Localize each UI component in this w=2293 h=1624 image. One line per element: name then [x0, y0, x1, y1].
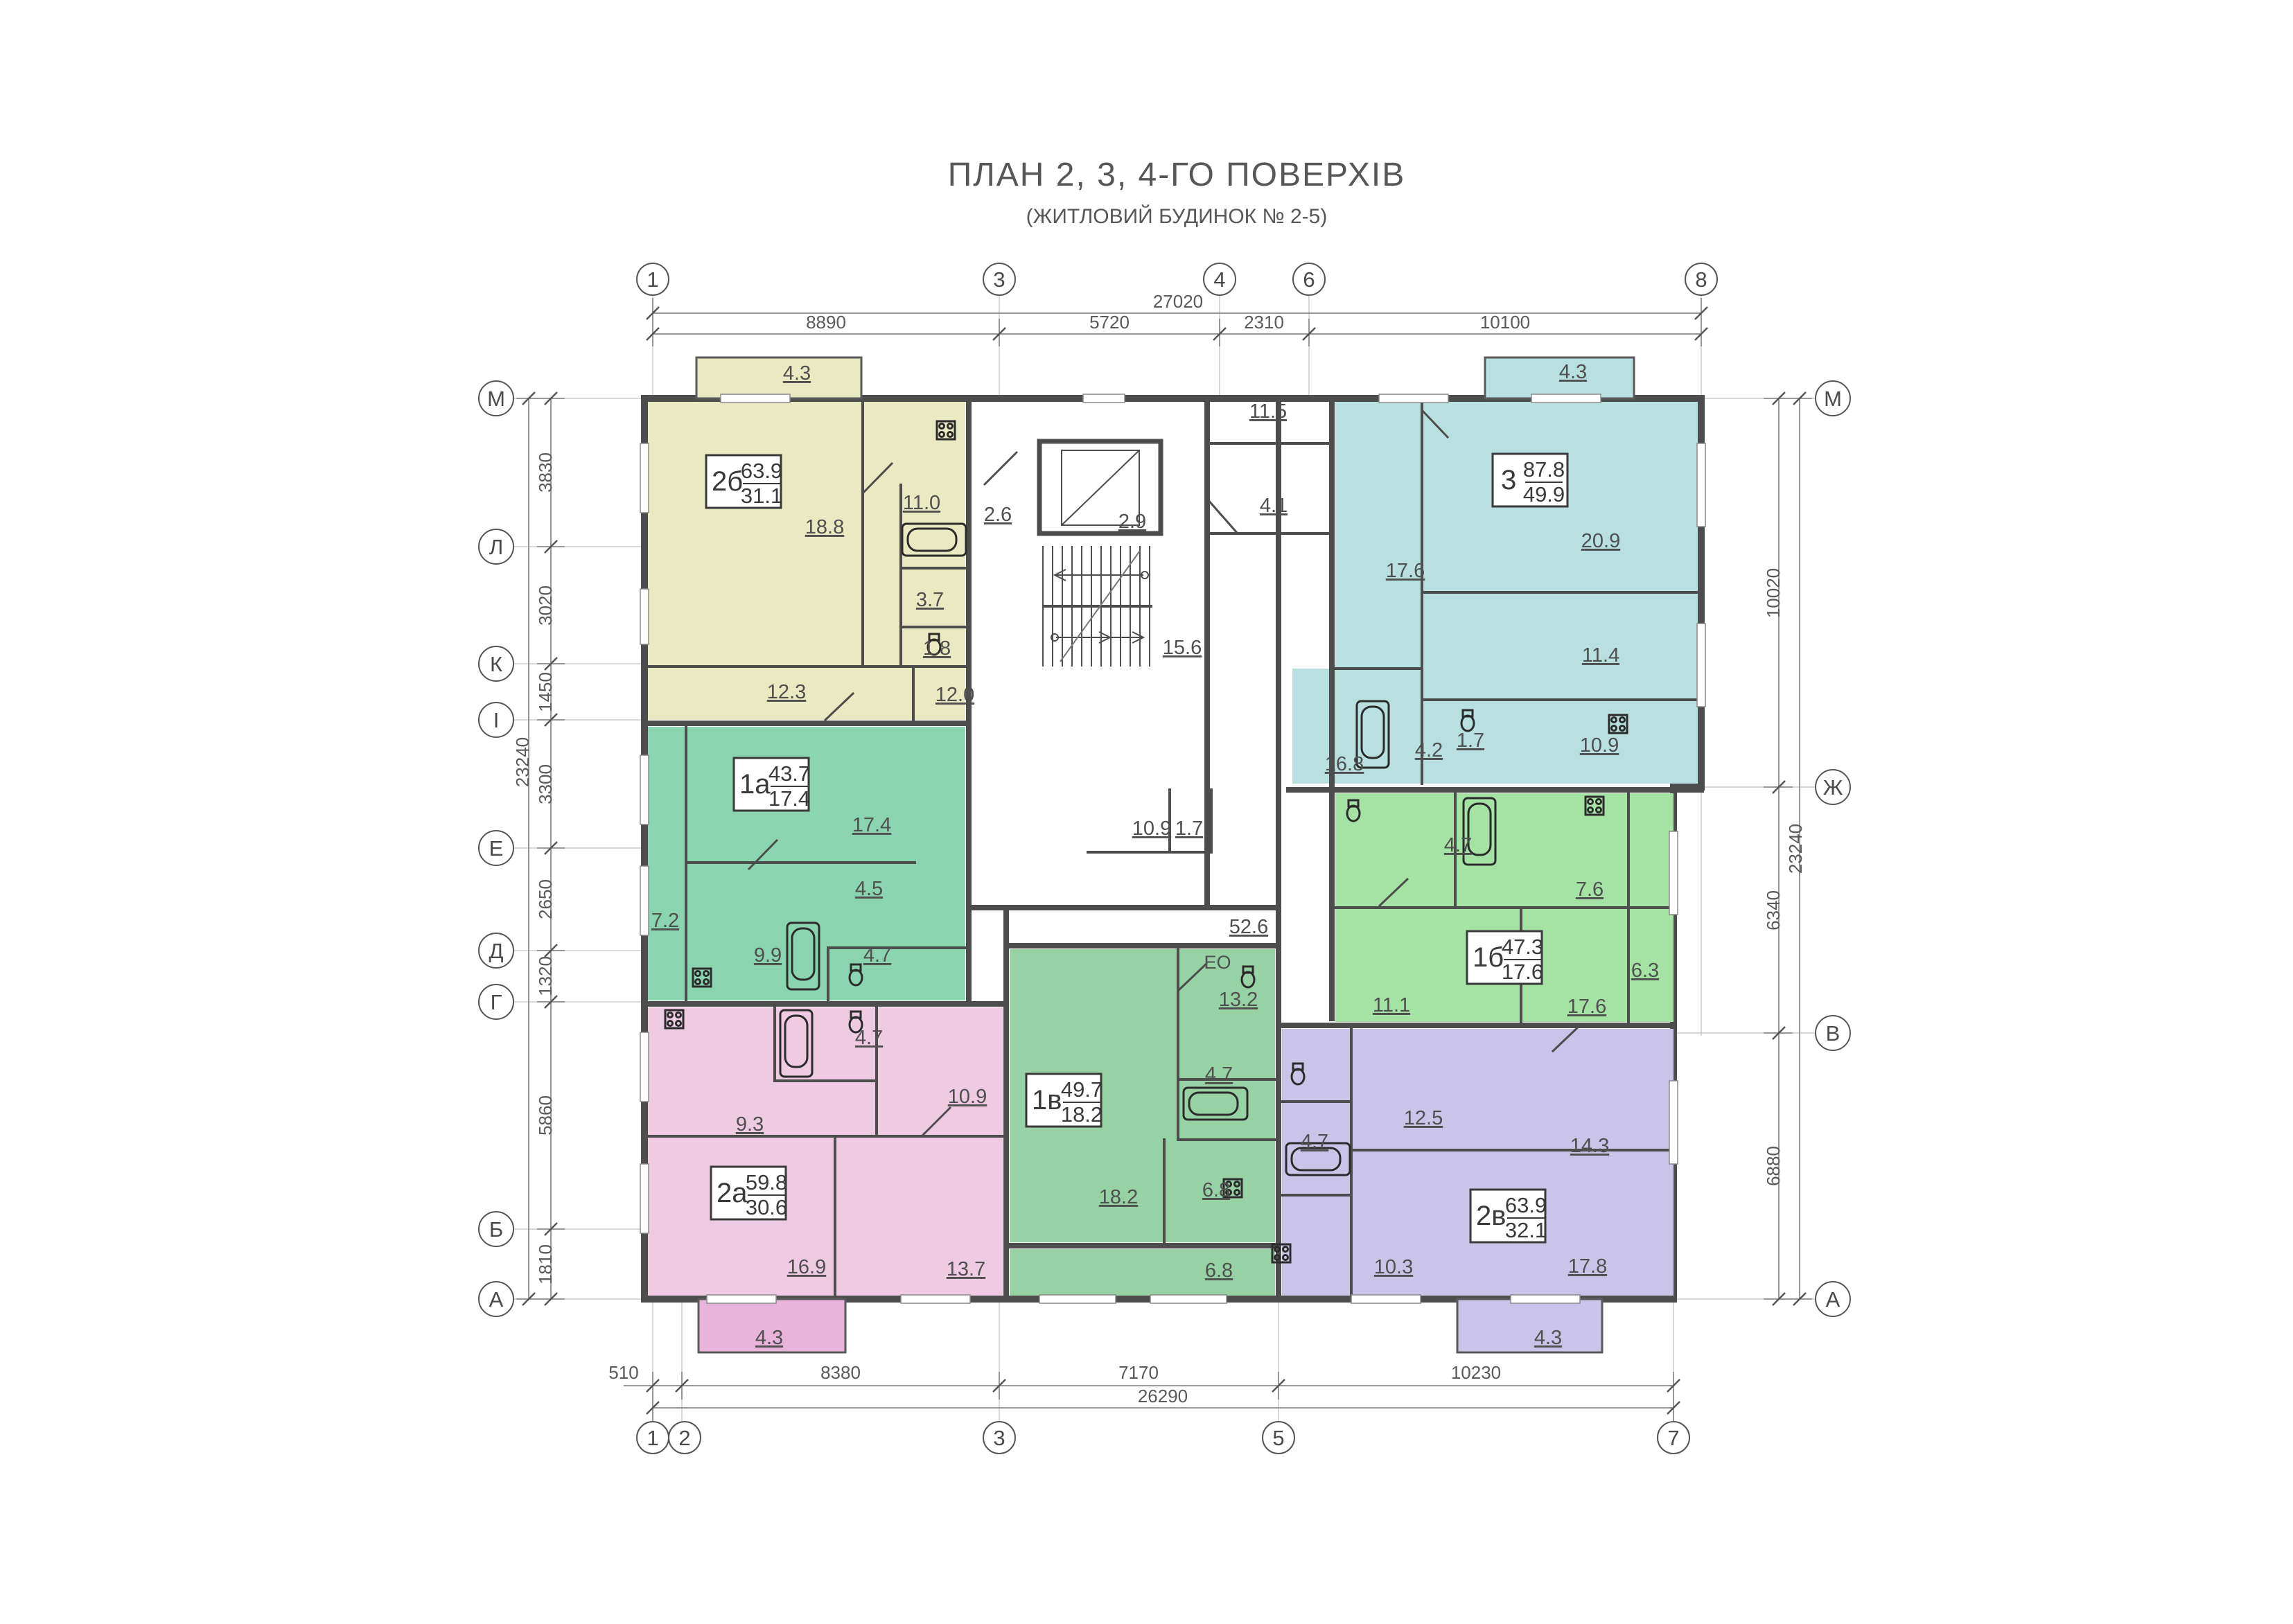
floor-plan-drawing: ПЛАН 2, 3, 4-ГО ПОВЕРХІВ (ЖИТЛОВИЙ БУДИН…	[0, 0, 2293, 1621]
room-area: 10.3	[1374, 1256, 1413, 1278]
room-area: 4.5	[855, 878, 883, 900]
dim-label: 2310	[1244, 312, 1284, 333]
room-area: 20.9	[1581, 530, 1620, 552]
axis-label: Ж	[1823, 775, 1843, 800]
room-area: 11.0	[903, 492, 940, 514]
dim-label: 8380	[820, 1362, 861, 1383]
dim-label: 27020	[1153, 291, 1203, 312]
room-area: 14.3	[1570, 1135, 1609, 1157]
dim-label: 10020	[1763, 568, 1784, 618]
apartment-id: 2а	[717, 1178, 748, 1208]
room-area: 1.8	[923, 637, 951, 660]
room-area: 6.3	[1631, 960, 1659, 982]
axis-label: 8	[1695, 267, 1707, 292]
balcony-area: 4.3	[783, 362, 811, 385]
room-area: 10.9	[1580, 734, 1619, 757]
axis-label: 4	[1213, 267, 1225, 292]
dim-ticks	[522, 392, 557, 1305]
room-area: 17.8	[1568, 1255, 1607, 1278]
page-title: ПЛАН 2, 3, 4-ГО ПОВЕРХІВ	[948, 157, 1406, 193]
apartment-label-1b: 1б 47.3 17.6	[1467, 931, 1543, 984]
room-area: 10.9	[1132, 818, 1171, 840]
apartment-id: 1б	[1473, 942, 1504, 973]
dim-label: 6340	[1763, 890, 1784, 930]
axis-label: 5	[1272, 1426, 1284, 1450]
apartment-living-area: 49.9	[1523, 482, 1565, 506]
apartment-total-area: 47.3	[1502, 935, 1543, 959]
axis-label: А	[1826, 1287, 1840, 1312]
axis-label: Г	[491, 990, 502, 1014]
room-area: 4.7	[1444, 834, 1472, 856]
apartment-2a-fill	[648, 1007, 1003, 1296]
room-area: 17.6	[1386, 560, 1425, 582]
axis-label: 3	[993, 267, 1005, 292]
dim-label: 10230	[1451, 1362, 1501, 1383]
axis-label: 6	[1303, 267, 1315, 292]
room-area: 16.9	[787, 1256, 826, 1278]
apartment-living-area: 32.1	[1505, 1218, 1547, 1242]
floor-plan-page: ПЛАН 2, 3, 4-ГО ПОВЕРХІВ (ЖИТЛОВИЙ БУДИН…	[0, 0, 2293, 1621]
axis-label: 1	[647, 1426, 658, 1450]
axis-label: 3	[993, 1426, 1005, 1450]
axis-label: М	[487, 387, 505, 411]
axis-label: В	[1826, 1021, 1840, 1045]
dim-label: 5860	[535, 1095, 556, 1136]
dim-label: 7170	[1118, 1362, 1159, 1383]
axis-label: Б	[489, 1217, 503, 1242]
room-area: 9.9	[754, 944, 782, 967]
apartment-2b-fill	[648, 402, 965, 720]
room-area: 1.7	[1175, 818, 1203, 840]
apartment-id: 1в	[1032, 1085, 1062, 1115]
dim-label: 510	[608, 1362, 638, 1383]
apartment-label-3: 3 87.8 49.9	[1493, 454, 1567, 506]
room-area: 52.6	[1229, 916, 1268, 938]
dimensions-top: 27020 8890 5720 2310 10100	[647, 291, 1707, 346]
axis-markers-left: М Л К І Е Д Г Б А	[479, 381, 513, 1316]
axis-label: К	[490, 652, 502, 676]
room-area: 10.9	[948, 1086, 987, 1108]
apartment-label-2a: 2а 59.8 30.6	[711, 1167, 787, 1219]
dim-label: 26290	[1138, 1386, 1188, 1406]
room-area: 12.3	[767, 681, 806, 703]
room-area: 4.7	[1301, 1131, 1328, 1153]
room-area: 15.6	[1163, 637, 1202, 659]
room-area: 13.7	[947, 1258, 985, 1280]
room-area: 7.2	[651, 910, 679, 932]
room-area: 9.3	[736, 1113, 764, 1136]
apartment-id: 2б	[712, 466, 743, 497]
dim-label: 6880	[1763, 1146, 1784, 1186]
axis-label: Е	[489, 836, 504, 860]
dim-label: 23240	[1785, 824, 1806, 874]
eo-tag: ЕО	[1204, 952, 1231, 973]
apartment-label-1a: 1а 43.7 17.4	[734, 758, 810, 811]
axis-markers-bottom: 1 2 3 5 7	[637, 1422, 1689, 1454]
apartment-living-area: 17.4	[768, 786, 810, 811]
room-area: 3.7	[916, 589, 944, 611]
room-area: 12.5	[1404, 1107, 1443, 1129]
apartment-total-area: 63.9	[1505, 1193, 1547, 1217]
dim-label: 10100	[1480, 312, 1530, 333]
apartment-total-area: 87.8	[1523, 457, 1565, 482]
apartment-living-area: 30.6	[746, 1195, 787, 1219]
apartment-total-area: 59.8	[746, 1170, 787, 1194]
axis-markers-right: М Ж В А	[1816, 381, 1850, 1316]
apartment-living-area: 18.2	[1061, 1102, 1102, 1127]
loggia-area: 6.8	[1205, 1260, 1233, 1282]
room-area: 12.0	[935, 684, 974, 706]
room-area: 18.2	[1099, 1186, 1138, 1208]
apartment-1v-loggia-fill	[1010, 1249, 1275, 1296]
room-area: 4.7	[1205, 1063, 1233, 1086]
dim-label: 2650	[535, 879, 556, 919]
apartment-living-area: 17.6	[1502, 960, 1543, 984]
room-area: 2.6	[984, 504, 1012, 526]
dim-label: 5720	[1089, 312, 1130, 333]
apartment-id: 3	[1501, 465, 1516, 495]
room-area: 7.6	[1576, 879, 1604, 901]
axis-label: 2	[678, 1426, 690, 1450]
balcony-area: 4.3	[1559, 361, 1587, 383]
axis-label: І	[493, 708, 500, 732]
axis-label: А	[489, 1287, 504, 1312]
axis-label: 1	[647, 267, 658, 292]
apartment-label-2b: 2б 63.9 31.1	[706, 455, 782, 508]
page-subtitle: (ЖИТЛОВИЙ БУДИНОК № 2-5)	[1026, 204, 1328, 228]
apartment-label-1v: 1в 49.7 18.2	[1026, 1074, 1102, 1127]
dimensions-right: 10020 6340 6880 23240	[1763, 392, 1812, 1305]
dim-label: 1810	[535, 1244, 556, 1285]
room-area: 13.2	[1219, 989, 1258, 1011]
apartment-id: 2в	[1476, 1201, 1506, 1231]
room-area: 4.1	[1260, 495, 1288, 517]
dim-label: 3020	[535, 585, 556, 626]
room-area: 18.8	[805, 516, 844, 538]
axis-label: М	[1824, 387, 1842, 411]
room-area: 2.9	[1118, 511, 1146, 533]
dim-label: 8890	[806, 312, 846, 333]
apartment-total-area: 43.7	[768, 761, 810, 786]
room-area: 4.7	[863, 944, 891, 967]
apartment-living-area: 31.1	[741, 484, 782, 508]
dim-label: 1320	[535, 956, 556, 996]
balcony-2v	[1457, 1299, 1602, 1352]
room-area: 4.7	[855, 1027, 883, 1049]
room-area: 4.2	[1415, 739, 1443, 761]
apartment-total-area: 63.9	[741, 459, 782, 483]
balcony-area: 4.3	[755, 1327, 783, 1349]
balcony-area: 4.3	[1534, 1327, 1562, 1349]
apartment-total-area: 49.7	[1061, 1077, 1102, 1102]
room-area: 16.8	[1325, 753, 1364, 775]
dim-label: 3300	[535, 764, 556, 804]
axis-label: Д	[489, 939, 504, 963]
room-area: 1.7	[1457, 730, 1484, 752]
apartment-label-2v: 2в 63.9 32.1	[1470, 1190, 1547, 1242]
room-area: 11.4	[1582, 644, 1619, 667]
room-area: 6.8	[1202, 1179, 1230, 1201]
room-area: 11.5	[1249, 400, 1287, 423]
axis-label: Л	[489, 535, 503, 559]
dimensions-bottom: 510 8380 7170 10230 26290	[608, 1362, 1680, 1422]
dim-label: 1450	[535, 672, 556, 712]
dim-label: 23240	[512, 737, 533, 787]
dimensions-left: 3830 3020 1450 3300 2650 1320 5860 1810 …	[512, 392, 565, 1305]
balcony-2b	[696, 358, 861, 398]
apartment-id: 1а	[739, 769, 771, 800]
room-area: 17.4	[852, 814, 891, 836]
room-area: 11.1	[1373, 994, 1410, 1016]
dim-label: 3830	[535, 452, 556, 493]
room-area: 17.6	[1567, 996, 1606, 1018]
axis-label: 7	[1667, 1426, 1679, 1450]
